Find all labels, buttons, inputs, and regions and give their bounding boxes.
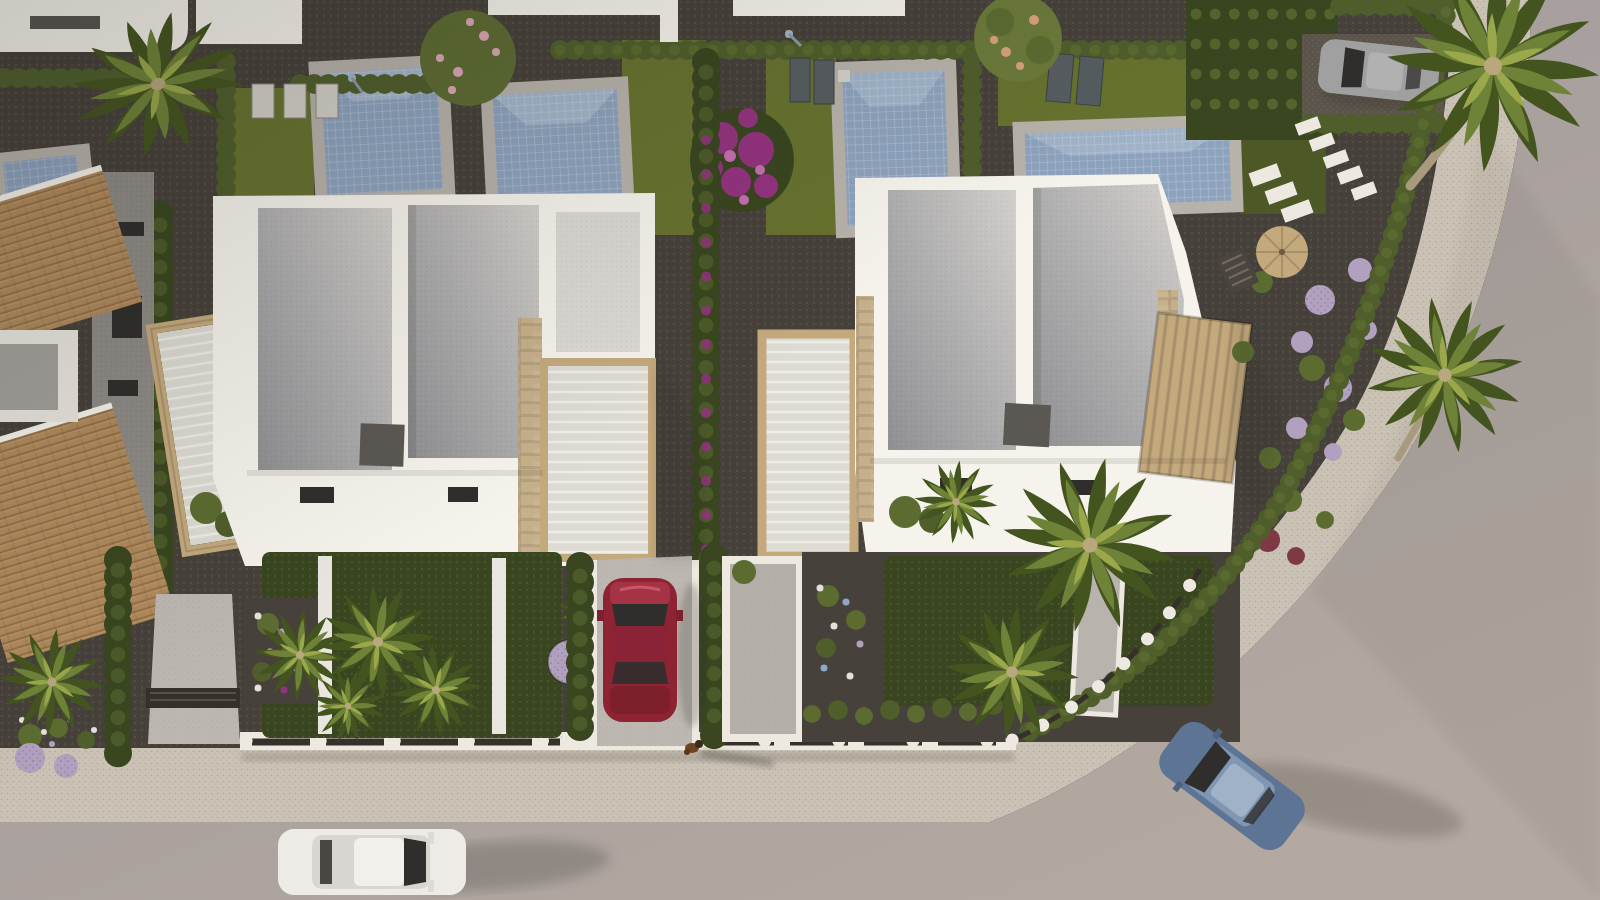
light-vignette (0, 0, 1600, 900)
aerial-render (0, 0, 1600, 900)
